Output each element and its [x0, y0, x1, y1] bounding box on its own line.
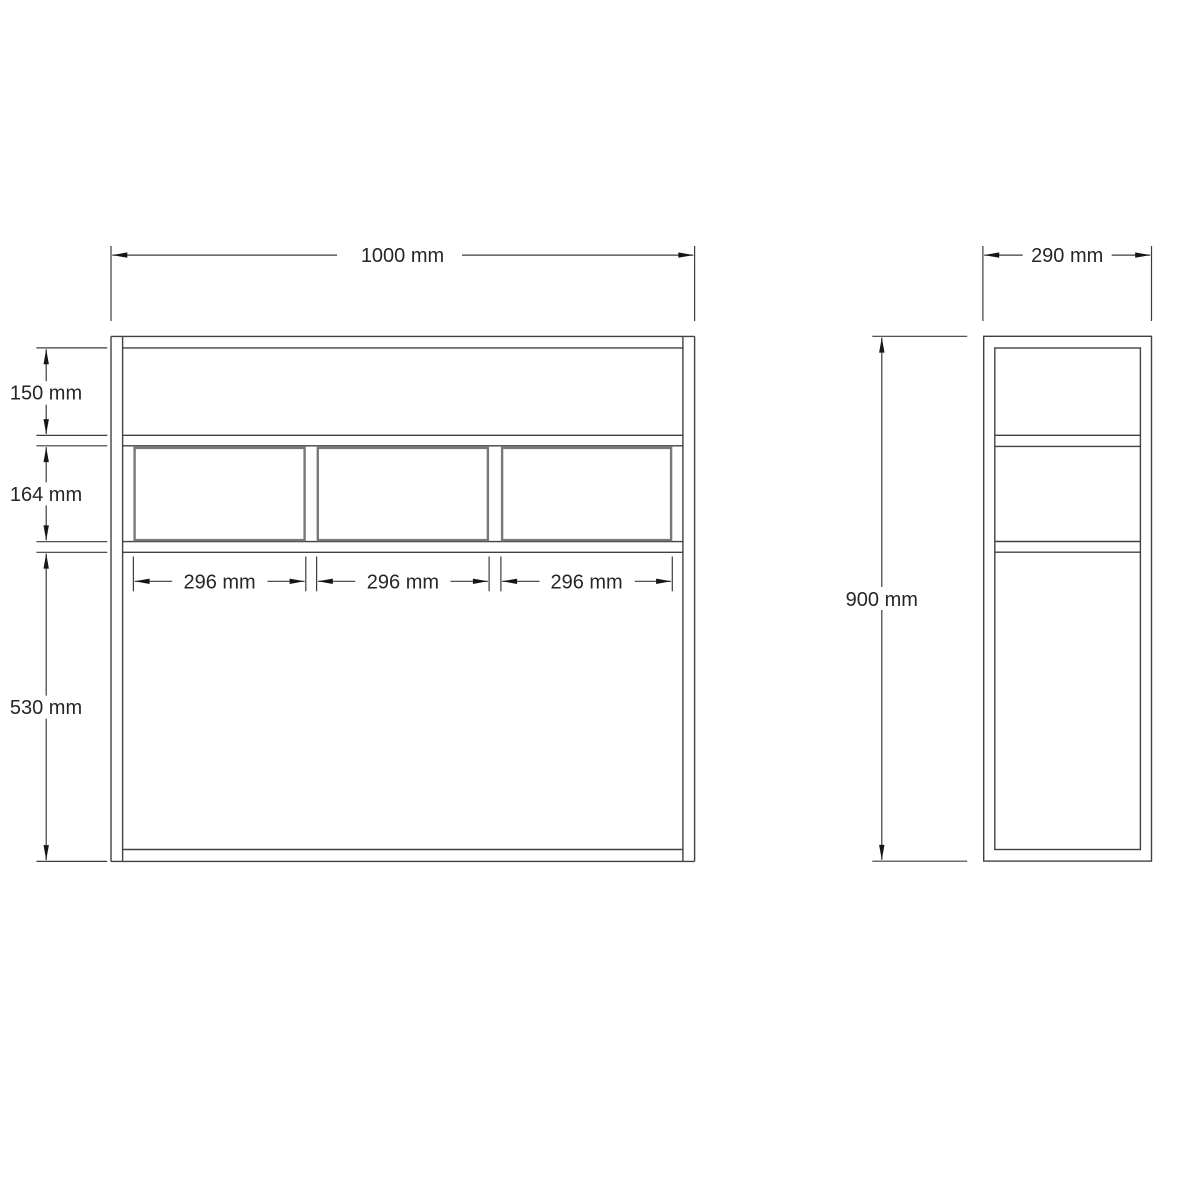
svg-text:290 mm: 290 mm: [1031, 245, 1103, 267]
svg-text:900 mm: 900 mm: [846, 589, 918, 611]
svg-text:530 mm: 530 mm: [10, 697, 82, 719]
svg-text:296 mm: 296 mm: [183, 571, 255, 593]
svg-text:296 mm: 296 mm: [367, 571, 439, 593]
svg-text:150 mm: 150 mm: [10, 383, 82, 405]
svg-text:164 mm: 164 mm: [10, 484, 82, 506]
svg-text:1000 mm: 1000 mm: [361, 245, 444, 267]
svg-text:296 mm: 296 mm: [550, 571, 622, 593]
